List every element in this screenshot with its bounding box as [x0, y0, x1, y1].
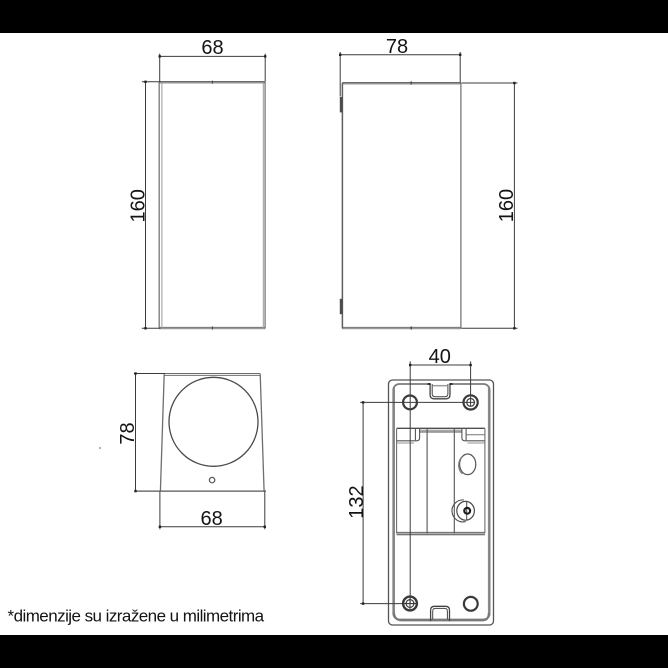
svg-text:160: 160: [496, 189, 518, 222]
svg-text:160: 160: [127, 189, 149, 222]
svg-text:68: 68: [200, 508, 222, 530]
svg-text:78: 78: [386, 36, 408, 58]
svg-text:*dimenzije su izražene u milim: *dimenzije su izražene u milimetrima: [8, 607, 265, 626]
svg-text:40: 40: [429, 346, 451, 368]
svg-text:68: 68: [201, 37, 223, 59]
svg-text:78: 78: [117, 422, 139, 444]
svg-text:132: 132: [346, 485, 368, 518]
